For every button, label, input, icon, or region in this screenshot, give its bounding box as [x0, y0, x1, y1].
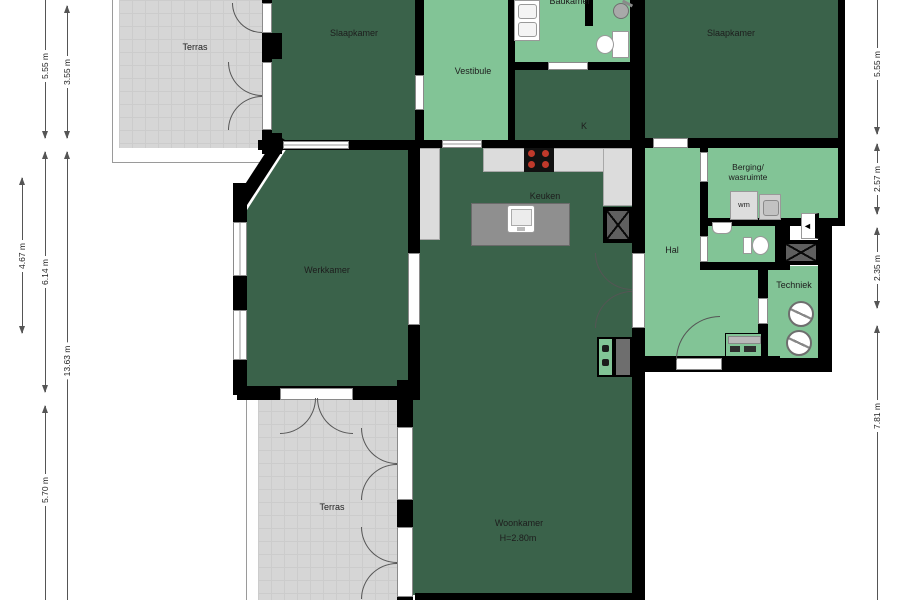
- dimension-left-5-55: 5.55 m: [38, 0, 52, 138]
- door-opening: [415, 75, 424, 110]
- dimension-right-2-35: 2.35 m: [870, 228, 884, 308]
- toilet-icon: [752, 236, 769, 255]
- room-slaapkamer-left: [262, 0, 415, 141]
- room-label-slaapkamer-right: Slaapkamer: [707, 28, 755, 38]
- dimension-right-5-55: 5.55 m: [870, 0, 884, 134]
- entrance-arrow-icon: ◄: [801, 213, 819, 239]
- dimension-right-2-57: 2.57 m: [870, 144, 884, 214]
- double-sink-icon: [514, 0, 540, 41]
- wall: [818, 222, 832, 372]
- kitchen-counter: [417, 148, 440, 240]
- dimension-left-3-55: 3.55 m: [60, 6, 74, 138]
- room-label-vestibule: Vestibule: [455, 66, 492, 76]
- wall: [415, 0, 424, 141]
- cooktop-icon: [524, 146, 554, 172]
- dimension-right-7-81: 7.81 m: [870, 326, 884, 600]
- room-label-woonkamer: Woonkamer: [495, 518, 543, 528]
- wall: [838, 0, 845, 226]
- room-label-terras-bottom: Terras: [319, 502, 344, 512]
- window-icon: [283, 141, 349, 149]
- shower-head-icon: [613, 3, 629, 19]
- dryer-icon: [759, 194, 781, 220]
- door-opening: [262, 3, 272, 33]
- door-opening: [397, 427, 413, 500]
- door-opening: [700, 152, 708, 182]
- wall: [630, 0, 645, 143]
- toilet-icon: [743, 237, 752, 254]
- dimension-left-4-67: 4.67 m: [15, 178, 29, 333]
- room-label-terras-top: Terras: [182, 42, 207, 52]
- door-opening: [397, 527, 413, 597]
- room-label-berging-line2: wasruimte: [729, 172, 768, 182]
- boiler-icon: [786, 330, 812, 356]
- door-opening: [632, 253, 645, 328]
- wall: [700, 262, 790, 270]
- wall: [415, 593, 645, 600]
- room-label-keuken: Keuken: [530, 191, 561, 201]
- dimension-left-5-70: 5.70 m: [38, 406, 52, 600]
- door-opening: [653, 138, 688, 148]
- room-label-closet: K: [581, 121, 587, 131]
- room-label-berging: Berging/ wasruimte: [729, 162, 768, 182]
- room-closet-k: [508, 62, 645, 144]
- dimension-left-13-63: 13.63 m: [60, 152, 74, 600]
- boiler-icon: [788, 301, 814, 327]
- toilet-icon: [596, 35, 614, 54]
- window-icon: [233, 310, 247, 360]
- door-opening: [442, 140, 482, 148]
- wall: [262, 33, 282, 59]
- room-label-berging-line1: Berging/: [729, 162, 768, 172]
- room-label-hal: Hal: [665, 245, 679, 255]
- meter-cupboard: [597, 337, 614, 377]
- hand-basin-icon: [712, 222, 732, 234]
- door-opening: [700, 236, 708, 262]
- room-label-techniek: Techniek: [776, 280, 812, 290]
- door-opening: [408, 253, 420, 325]
- door-opening: [758, 298, 768, 324]
- room-label-badkamer: Badkamer: [549, 0, 590, 6]
- door-opening: [548, 62, 588, 70]
- floor-plan: wm ◄ Terras Slaapkamer Vestibule Badkame…: [0, 0, 900, 600]
- window-icon: [233, 222, 247, 276]
- door-opening: [262, 62, 272, 130]
- kitchen-counter: [603, 148, 633, 206]
- shaft-x-icon: [603, 207, 633, 243]
- washing-machine-icon: wm: [730, 191, 758, 220]
- washing-machine-label: wm: [731, 200, 757, 209]
- shaft-x-icon: [782, 240, 820, 265]
- dimension-left-6-14: 6.14 m: [38, 152, 52, 392]
- room-label-werkkamer: Werkkamer: [304, 265, 350, 275]
- entrance-niche: [725, 333, 762, 357]
- room-label-slaapkamer-left: Slaapkamer: [330, 28, 378, 38]
- wall: [758, 358, 832, 372]
- toilet-icon: [612, 31, 629, 58]
- kitchen-sink-icon: [507, 205, 535, 233]
- wall: [632, 372, 645, 600]
- cabinet: [614, 337, 632, 377]
- room-slaapkamer-right: [637, 0, 842, 141]
- room-label-ceiling-height: H=2.80m: [500, 533, 537, 543]
